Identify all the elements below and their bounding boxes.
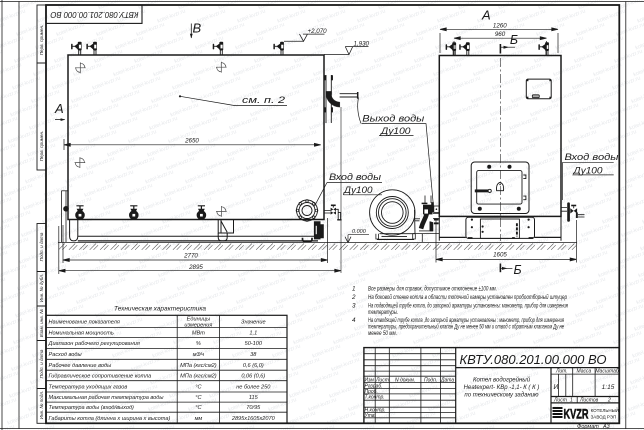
svg-text:температуры.: температуры. [368,309,398,316]
svg-text:м3/ч: м3/ч [193,352,204,358]
svg-text:ЗАВОД РЭП: ЗАВОД РЭП [591,414,617,419]
svg-text:Лит.: Лит. [555,369,568,375]
svg-text:50-100: 50-100 [245,341,263,347]
svg-text:Перв. примен.: Перв. примен. [39,25,44,56]
svg-text:На подводящей трубе котла, до: На подводящей трубе котла, до запорной а… [368,302,568,310]
svg-text:Инв. № дубл.: Инв. № дубл. [39,274,44,302]
svg-text:0,06 (0,6): 0,06 (0,6) [241,374,265,380]
svg-text:измерения: измерения [184,322,212,328]
svg-text:kotel-kvzr.ru: kotel-kvzr.ru [0,397,17,413]
svg-text:Взам. инв. №: Взам. инв. № [39,309,44,337]
svg-text:Листов: Листов [579,398,599,404]
svg-text:КВТУ.080.201.00.000 ВО: КВТУ.080.201.00.000 ВО [50,10,138,20]
svg-text:kotel-kvzr.ru: kotel-kvzr.ru [627,142,644,158]
svg-text:Heatexpert- КВр -1,1- К ( К ): Heatexpert- КВр -1,1- К ( К ) [464,385,540,391]
svg-text:МВт: МВт [192,331,205,337]
svg-text:0,6 (6,0): 0,6 (6,0) [243,363,264,369]
svg-text:1: 1 [570,398,573,404]
svg-text:Дата: Дата [440,378,454,384]
svg-text:960: 960 [495,31,506,38]
svg-text:Подп. и дата: Подп. и дата [39,232,44,261]
svg-text:МПа (кгс/см2): МПа (кгс/см2) [180,363,217,369]
svg-text:Температура уходящих газов: Температура уходящих газов [49,385,128,391]
svg-text:2770: 2770 [183,253,198,260]
svg-text:Утв.: Утв. [365,413,376,419]
svg-text:не более 250: не более 250 [236,385,271,391]
svg-text:kotel-kvzr.ru: kotel-kvzr.ru [0,317,23,333]
svg-text:2650: 2650 [184,138,199,145]
svg-text:115: 115 [249,395,259,401]
svg-text:kotel-kvzr.ru: kotel-kvzr.ru [226,424,256,430]
svg-text:%: % [196,341,201,347]
svg-text:КОТЕЛЬНЫЙ: КОТЕЛЬНЫЙ [591,406,619,413]
svg-text:Расход воды: Расход воды [49,352,82,358]
svg-text:2: 2 [607,398,611,404]
svg-text:Инв. № подл.: Инв. № подл. [39,391,44,420]
svg-text:Рабочее давление воды: Рабочее давление воды [49,363,112,369]
svg-text:На боковой стенке котла в обла: На боковой стенке котла в области топочн… [368,293,567,301]
svg-text:kotel-kvzr.ru: kotel-kvzr.ru [0,290,25,306]
svg-text:Формат: Формат [577,424,599,430]
svg-text:kotel-kvzr.ru: kotel-kvzr.ru [630,370,644,386]
svg-text:1605: 1605 [493,252,507,259]
svg-text:Техническая характеристика: Техническая характеристика [114,306,206,313]
svg-text:Б: Б [514,263,522,277]
svg-text:Масса: Масса [577,369,592,375]
svg-text:2895: 2895 [188,264,203,271]
svg-text:kotel-kvzr.ru: kotel-kvzr.ru [0,22,5,38]
svg-text:2895х1605х2070: 2895х1605х2070 [231,416,276,422]
svg-text:kotel-kvzr.ru: kotel-kvzr.ru [0,75,1,91]
svg-text:Т.контр.: Т.контр. [365,395,385,401]
svg-text:Выход воды: Выход воды [362,114,424,125]
svg-text:Б: Б [510,33,518,47]
svg-text:Гидравлическое сопротивление к: Гидравлическое сопротивление котла [49,374,152,380]
svg-text:3: 3 [352,303,356,310]
svg-text:kotel-kvzr.ru: kotel-kvzr.ru [0,89,20,105]
svg-text:kotel-kvzr.ru: kotel-kvzr.ru [0,116,18,132]
svg-text:Все размеры для справок, допус: Все размеры для справок, допустимое откл… [368,285,497,293]
svg-text:N докум.: N докум. [395,378,415,384]
svg-text:kotel-kvzr.ru: kotel-kvzr.ru [0,370,19,386]
svg-text:kotel-kvzr.ru: kotel-kvzr.ru [0,35,24,51]
svg-text:°С: °С [195,395,202,401]
svg-text:kotel-kvzr.ru: kotel-kvzr.ru [0,276,6,292]
svg-text:kotel-kvzr.ru: kotel-kvzr.ru [0,250,8,266]
svg-text:kotel-kvzr.ru: kotel-kvzr.ru [546,424,576,430]
svg-text:kotel-kvzr.ru: kotel-kvzr.ru [266,424,296,430]
svg-text:Габариты котла (длинна х ширин: Габариты котла (длинна х ширина х высота… [49,416,171,422]
svg-text:kotel-kvzr.ru: kotel-kvzr.ru [306,424,336,430]
svg-text:Вход воды: Вход воды [565,152,619,163]
svg-text:kotel-kvzr.ru: kotel-kvzr.ru [426,424,456,430]
svg-text:Диапазон рабочего регулировани: Диапазон рабочего регулирования [48,341,140,347]
svg-text:см. п. 2: см. п. 2 [242,95,286,106]
svg-text:kotel-kvzr.ru: kotel-kvzr.ru [466,424,496,430]
svg-text:KVZR: KVZR [564,406,589,421]
svg-text:Наименование показателя: Наименование показателя [49,320,120,326]
svg-text:kotel-kvzr.ru: kotel-kvzr.ru [26,424,56,430]
svg-text:Подп.: Подп. [424,378,437,384]
svg-text:Перв. примен.: Перв. примен. [39,131,44,162]
svg-text:kotel-kvzr.ru: kotel-kvzr.ru [626,424,644,430]
svg-text:А3: А3 [602,424,611,430]
svg-text:1,1: 1,1 [249,331,257,337]
svg-text:kotel-kvzr.ru: kotel-kvzr.ru [0,343,21,359]
svg-text:Вход воды: Вход воды [329,172,381,183]
svg-text:Температура воды (вход/выход): Температура воды (вход/выход) [49,405,135,411]
svg-text:4: 4 [352,317,356,324]
svg-text:kotel-kvzr.ru: kotel-kvzr.ru [0,8,26,24]
svg-text:КВТУ.080.201.00.000 ВО: КВТУ.080.201.00.000 ВО [460,352,607,367]
svg-text:70/95: 70/95 [246,405,261,411]
svg-text:менее 50 мм.: менее 50 мм. [368,330,397,337]
svg-text:°С: °С [195,385,202,391]
svg-text:kotel-kvzr.ru: kotel-kvzr.ru [629,116,644,132]
svg-text:2: 2 [351,294,356,301]
svg-text:Максимальная рабочая температу: Максимальная рабочая температура воды [49,395,164,401]
svg-text:kotel-kvzr.ru: kotel-kvzr.ru [66,424,96,430]
svg-text:температуры, предохранительный: температуры, предохранительный клапан Ду… [368,322,564,330]
svg-text:А: А [54,101,64,116]
svg-text:kotel-kvzr.ru: kotel-kvzr.ru [106,424,136,430]
svg-text:А: А [481,8,491,23]
svg-text:Лист: Лист [553,398,567,404]
svg-text:kotel-kvzr.ru: kotel-kvzr.ru [0,142,16,158]
svg-text:kotel-kvzr.ru: kotel-kvzr.ru [628,397,644,413]
svg-text:мм: мм [195,416,203,422]
svg-text:kotel-kvzr.ru: kotel-kvzr.ru [346,424,376,430]
svg-text:1260: 1260 [493,23,507,30]
svg-text:0.000: 0.000 [352,229,367,235]
svg-text:kotel-kvzr.ru: kotel-kvzr.ru [146,424,176,430]
svg-text:1: 1 [352,286,356,293]
svg-text:МПа (кгс/см2): МПа (кгс/см2) [180,374,217,380]
svg-text:kotel-kvzr.ru: kotel-kvzr.ru [186,424,216,430]
svg-text:kotel-kvzr.ru: kotel-kvzr.ru [386,424,416,430]
svg-text:В: В [193,21,202,36]
svg-text:Котел водогрейный: Котел водогрейный [473,377,531,384]
svg-text:38: 38 [250,352,257,358]
svg-text:по техническому заданию: по техническому заданию [464,393,539,399]
svg-text:1:15: 1:15 [602,384,615,391]
svg-text:Масштаб: Масштаб [595,369,619,375]
svg-text:Номинальная мощность: Номинальная мощность [49,331,114,337]
svg-text:Подп. и дата: Подп. и дата [39,349,44,378]
svg-text:kotel-kvzr.ru: kotel-kvzr.ru [506,424,536,430]
svg-text:kotel-kvzr.ru: kotel-kvzr.ru [0,223,10,239]
svg-text:°С: °С [195,405,202,411]
svg-text:Значение: Значение [241,320,266,326]
